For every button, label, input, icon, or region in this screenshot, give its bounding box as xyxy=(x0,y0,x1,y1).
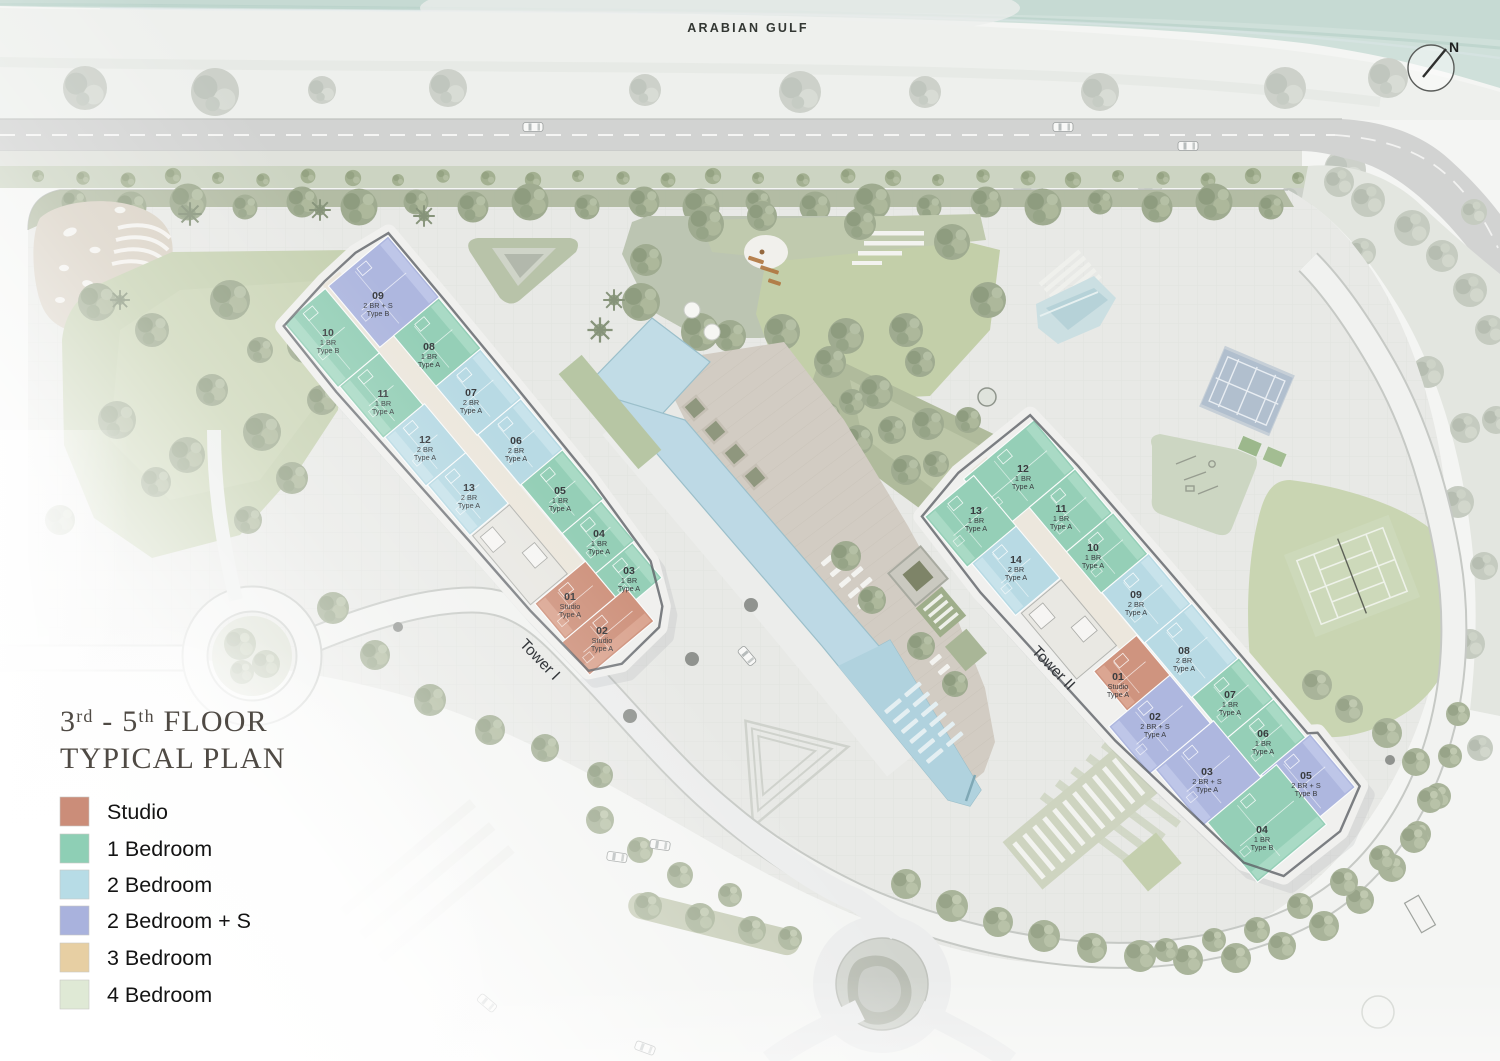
svg-text:ARABIAN GULF: ARABIAN GULF xyxy=(687,21,809,35)
svg-text:4 Bedroom: 4 Bedroom xyxy=(107,983,212,1007)
svg-text:TYPICAL PLAN: TYPICAL PLAN xyxy=(60,742,286,775)
svg-text:N: N xyxy=(1449,39,1459,55)
svg-text:2 Bedroom: 2 Bedroom xyxy=(107,873,212,897)
svg-text:1 Bedroom: 1 Bedroom xyxy=(107,837,212,861)
svg-text:2 Bedroom + S: 2 Bedroom + S xyxy=(107,909,251,933)
svg-text:Studio: Studio xyxy=(107,800,168,824)
svg-text:3 Bedroom: 3 Bedroom xyxy=(107,946,212,970)
